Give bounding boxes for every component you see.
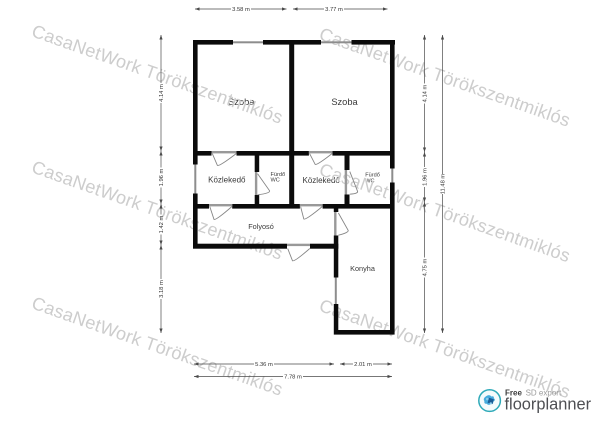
svg-text:3.58 m: 3.58 m <box>232 7 250 13</box>
svg-text:4.14 m: 4.14 m <box>159 84 165 102</box>
svg-text:2.01 m: 2.01 m <box>354 362 372 368</box>
svg-text:1.42 m: 1.42 m <box>159 215 165 233</box>
svg-text:1.96 m: 1.96 m <box>159 168 165 186</box>
svg-text:3.77 m: 3.77 m <box>325 7 343 13</box>
svg-text:Közlekedő: Közlekedő <box>208 176 246 185</box>
svg-text:3.18 m: 3.18 m <box>159 280 165 298</box>
svg-text:Szoba: Szoba <box>331 97 358 107</box>
svg-text:WC: WC <box>271 178 280 184</box>
svg-text:Konyha: Konyha <box>350 264 376 273</box>
svg-text:11.48 m: 11.48 m <box>441 174 447 195</box>
svg-text:4.14 m: 4.14 m <box>423 84 429 102</box>
svg-text:floorplanner: floorplanner <box>505 396 592 414</box>
svg-text:1.96 m: 1.96 m <box>423 168 429 186</box>
svg-text:7.78 m: 7.78 m <box>284 375 302 381</box>
svg-text:5.36 m: 5.36 m <box>255 362 273 368</box>
svg-text:4.75 m: 4.75 m <box>423 258 429 276</box>
svg-text:Folyosó: Folyosó <box>248 222 274 231</box>
